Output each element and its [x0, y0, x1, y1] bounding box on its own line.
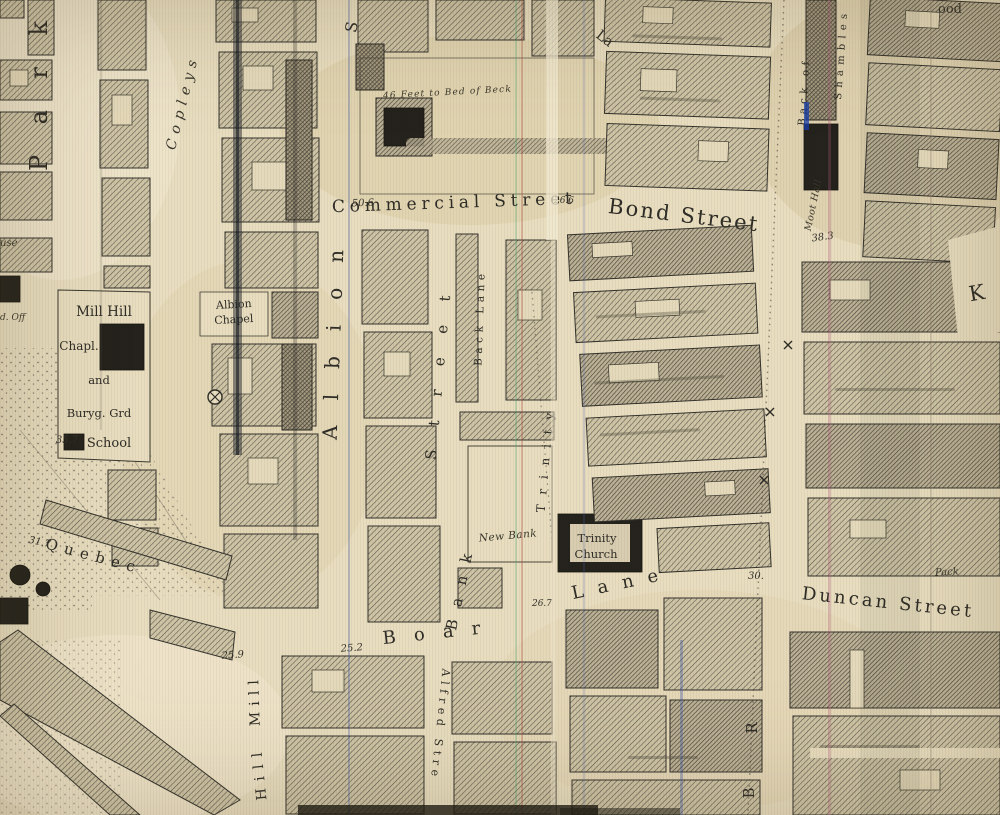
label-briggate-b: B: [740, 787, 758, 798]
number-30: 30.: [748, 571, 764, 582]
label-mill-hill-chapel-4: Buryg. Grd: [67, 406, 132, 420]
number-50-6: 50.6: [352, 198, 375, 210]
label-pack-fragment: Pack: [934, 566, 959, 578]
label-mill-hill-chapel-1: Mill Hill: [76, 304, 132, 320]
map-canvas: Park Copleys ouse d. Off Mill Hill Chapl…: [0, 0, 1000, 815]
moot-hall-building: [804, 124, 838, 190]
historic-map-scan: Park Copleys ouse d. Off Mill Hill Chapl…: [0, 0, 1000, 815]
mill-hill-chapel-building: [100, 324, 144, 370]
number-35-7: 35.7: [56, 435, 79, 446]
label-briggate-r: R: [743, 722, 761, 734]
label-trinity-church-2: Church: [575, 547, 619, 561]
buildings-bond-north: [599, 0, 773, 191]
number-25-9: 25.9: [220, 649, 245, 662]
label-office-fragment: d. Off: [0, 313, 27, 323]
number-26-7: 26.7: [531, 599, 552, 609]
label-wood-fragment: ood: [938, 2, 962, 17]
label-mill-hill-chapel-2: Chapl.: [59, 339, 98, 353]
label-mill-hill-chapel-3: and: [88, 373, 110, 387]
label-mill-hill-chapel-5: School: [87, 436, 131, 451]
number-25-2: 25.2: [339, 642, 363, 655]
label-house-fragment: ouse: [0, 238, 18, 249]
